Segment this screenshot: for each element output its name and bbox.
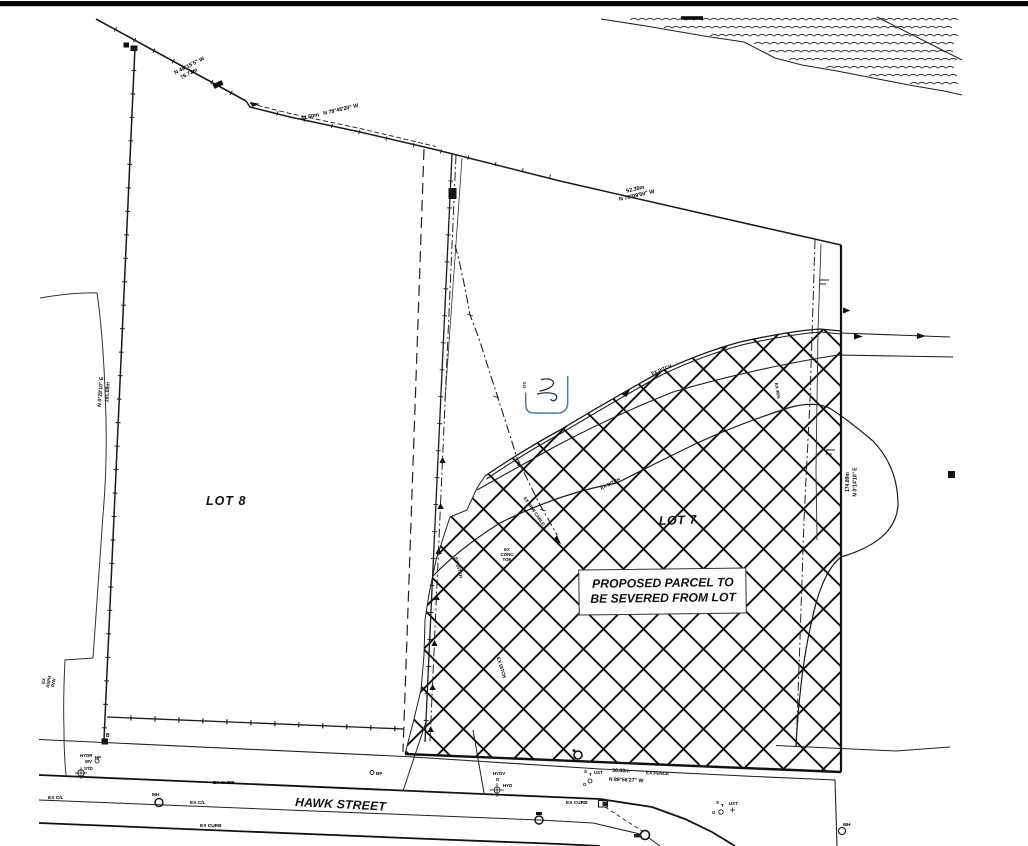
svg-text:PROPOSED PARCEL TO: PROPOSED PARCEL TO	[592, 575, 734, 591]
svg-text:T: T	[589, 772, 592, 777]
svg-text:OS: OS	[522, 382, 527, 389]
svg-text:LOT 7: LOT 7	[659, 513, 698, 528]
svg-text:UST: UST	[594, 770, 603, 775]
svg-text:HYDR: HYDR	[80, 753, 93, 758]
svg-text:MH: MH	[152, 792, 160, 798]
svg-text:50.80m: 50.80m	[612, 768, 630, 775]
svg-text:B: B	[106, 733, 110, 739]
svg-text:EX C/L: EX C/L	[48, 795, 64, 801]
svg-text:EX CURB: EX CURB	[213, 780, 235, 786]
svg-text:UST: UST	[729, 801, 738, 806]
svg-text:BE SEVERED FROM LOT: BE SEVERED FROM LOT	[590, 590, 737, 606]
svg-text:LOT 8: LOT 8	[206, 494, 246, 508]
svg-text:BP: BP	[376, 771, 382, 776]
svg-text:STD: STD	[84, 766, 93, 771]
svg-text:HYDV: HYDV	[493, 771, 505, 776]
svg-text:O: O	[583, 782, 587, 787]
svg-text:HYD: HYD	[503, 783, 512, 788]
svg-text:O: O	[712, 810, 716, 815]
svg-text:EX CURB: EX CURB	[200, 823, 222, 829]
svg-text:N 0°14'10" E: N 0°14'10" E	[853, 467, 859, 497]
svg-text:WV: WV	[85, 759, 92, 764]
svg-text:T: T	[721, 803, 724, 808]
svg-text:S: S	[584, 769, 587, 774]
svg-text:D: D	[496, 777, 499, 782]
svg-text:174.89m: 174.89m	[845, 472, 851, 492]
svg-text:S: S	[716, 800, 719, 805]
svg-text:EX CURB: EX CURB	[566, 800, 588, 806]
svg-text:EX C/L: EX C/L	[190, 800, 206, 806]
svg-text:MH: MH	[843, 822, 851, 828]
svg-text:TOE: TOE	[503, 557, 512, 562]
